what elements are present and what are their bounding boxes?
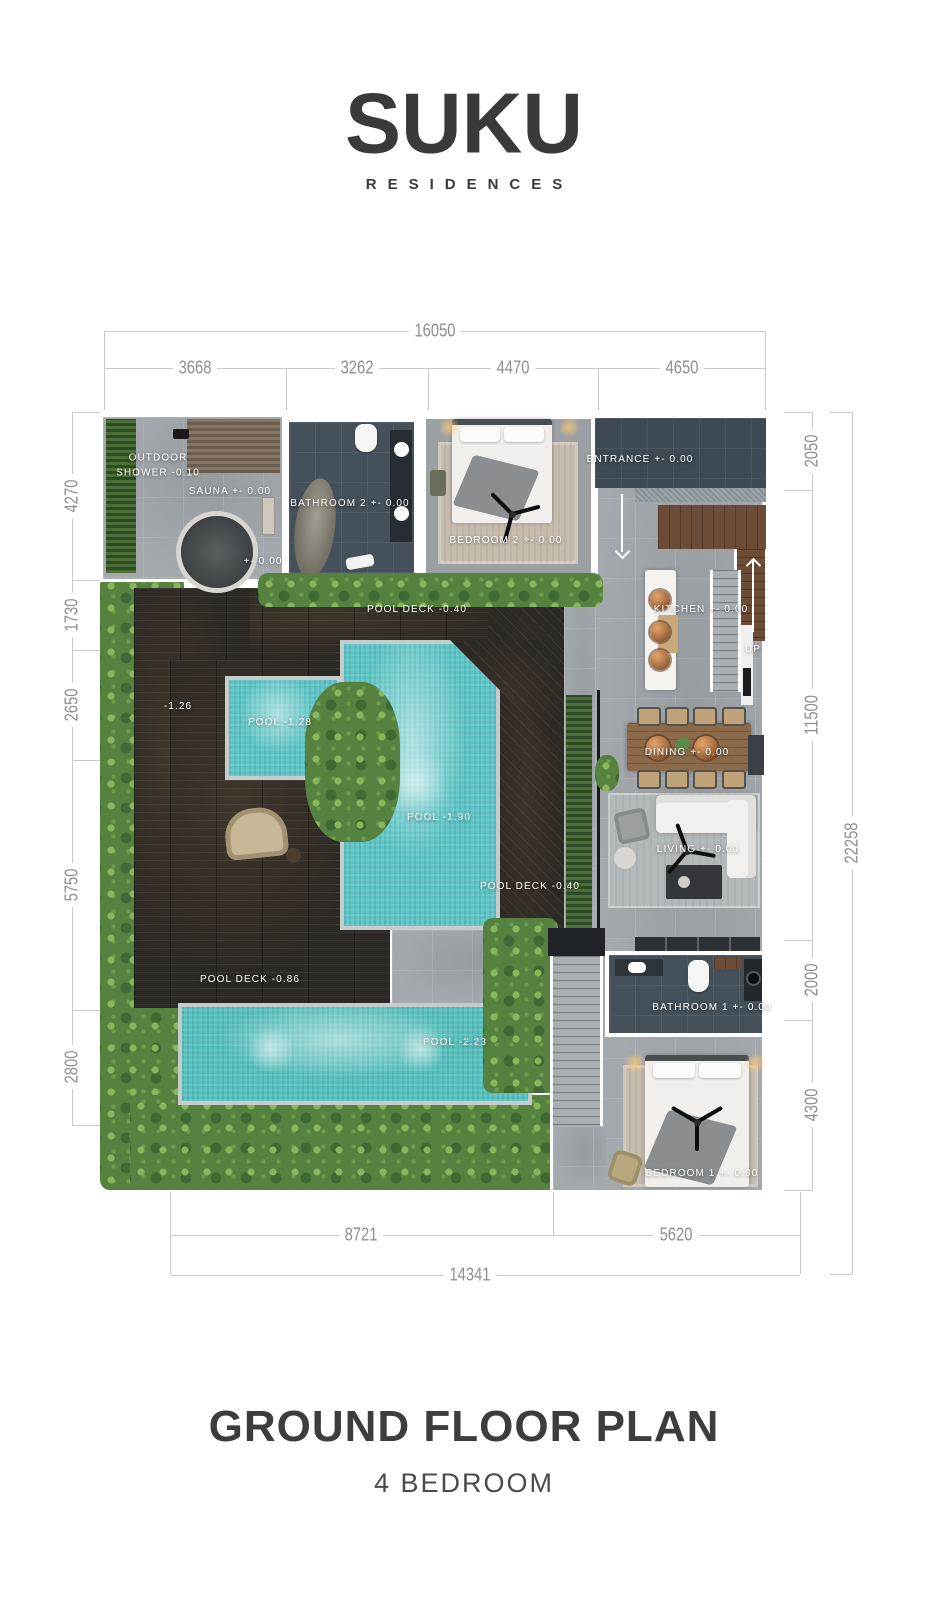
dim-tick — [104, 331, 105, 410]
hedge-corridor — [566, 695, 592, 940]
plan-title-block: GROUND FLOOR PLAN 4 BEDROOM — [0, 1402, 928, 1499]
decor-bowl — [678, 876, 690, 888]
sofa-chaise — [727, 800, 756, 878]
dim-right-seg-4: 4300 — [802, 1083, 823, 1127]
stairs-up-label: UP — [745, 643, 761, 658]
plan-title: GROUND FLOOR PLAN — [0, 1402, 928, 1452]
bedroom1-label: BEDROOM 1 +- 0.00 — [646, 1167, 759, 1182]
media-console — [635, 937, 760, 952]
dim-left-seg-3: 2650 — [62, 683, 83, 727]
sauna-bench — [262, 497, 275, 535]
wall-sconce — [624, 1052, 646, 1074]
dining-chair — [693, 707, 717, 726]
dim-tick — [72, 650, 100, 651]
dim-tick — [72, 412, 100, 413]
dim-top-seg-3: 4470 — [491, 358, 535, 379]
wall-sconce — [438, 416, 460, 438]
dim-tick — [784, 1020, 812, 1021]
dim-bottom-seg-line — [170, 1235, 800, 1236]
sink — [394, 442, 409, 457]
dim-right-total: 22258 — [842, 817, 863, 870]
dim-right-seg-3: 2000 — [802, 958, 823, 1002]
plunge-level-label: +- 0.00 — [243, 555, 282, 570]
dim-tick — [784, 1190, 812, 1191]
dim-tick — [72, 1010, 100, 1011]
bathroom1-label: BATHROOM 1 +- 0.00 — [652, 1001, 771, 1016]
floor-plan: OUTDOOR SHOWER -0.10 SAUNA +- 0.00 +- 0.… — [100, 410, 766, 1190]
dim-left-seg-1: 4270 — [62, 474, 83, 518]
stairs-lower-flight — [550, 956, 603, 1126]
living-label: LIVING +- 0.00 — [657, 843, 739, 858]
dim-tick — [72, 580, 100, 581]
pillow — [460, 427, 500, 442]
floor-plan-page: SUKU RESIDENCES 16050 3668 3262 4470 465… — [0, 0, 928, 1600]
wood-landing — [658, 505, 766, 549]
dim-tick — [598, 368, 599, 410]
dim-tick — [784, 412, 812, 413]
dim-tick — [830, 1274, 852, 1275]
kitchen-label: KITCHEN +- 0.00 — [654, 603, 749, 618]
entrance-step — [635, 488, 766, 502]
floor-plant — [595, 755, 619, 791]
pillow — [653, 1063, 695, 1078]
bedroom2-label: BEDROOM 2 +- 0.00 — [450, 534, 563, 549]
wood-shelf — [714, 958, 742, 969]
lap-pool — [178, 1003, 532, 1105]
ceiling-fan-icon — [697, 1122, 699, 1124]
dining-chair — [637, 707, 661, 726]
dining-chair — [637, 770, 661, 789]
shower-fixture-icon — [173, 429, 189, 439]
dining-chair — [665, 770, 689, 789]
deck-side-table — [286, 848, 301, 863]
stairs-main-flight — [710, 570, 741, 692]
plan-subtitle: 4 BEDROOM — [0, 1468, 928, 1499]
cold-plunge-tub — [176, 511, 258, 593]
dim-left-seg-5: 2800 — [62, 1045, 83, 1089]
dim-bottom-total: 14341 — [444, 1265, 497, 1286]
dim-tick — [72, 1125, 100, 1126]
dim-tick — [765, 331, 766, 410]
ceiling-fan-icon — [512, 514, 514, 516]
kids-pool-label: POOL -1.28 — [248, 716, 312, 731]
pool-deck-top-label: POOL DECK -0.40 — [367, 603, 467, 618]
dim-tick — [286, 368, 287, 410]
dining-chair — [722, 707, 746, 726]
bathroom2-label: BATHROOM 2 +- 0.00 — [290, 497, 409, 512]
sink — [628, 962, 646, 973]
dim-left-seg-2: 1730 — [62, 593, 83, 637]
dim-bottom-seg-1: 8721 — [339, 1225, 383, 1246]
dim-tick — [72, 760, 100, 761]
dim-top-seg-1: 3668 — [173, 358, 217, 379]
dim-left-seg-4: 5750 — [62, 863, 83, 907]
pillow — [699, 1063, 741, 1078]
stone-sink — [746, 971, 761, 986]
glass-wall — [597, 690, 600, 940]
outdoor-shower-label: OUTDOOR SHOWER -0.10 — [115, 452, 201, 481]
lap-pool-label: POOL -2.23 — [423, 1036, 487, 1051]
walkway — [550, 1126, 606, 1190]
appliance — [743, 668, 751, 696]
dining-chair — [665, 707, 689, 726]
dim-left-line — [72, 412, 73, 1125]
dim-top-seg-4: 4650 — [660, 358, 704, 379]
garden-lap-right — [483, 918, 558, 1093]
brand-logo: SUKU RESIDENCES — [0, 84, 928, 193]
pool-light — [250, 1018, 292, 1080]
console-cabinet — [748, 735, 764, 775]
dim-tick — [428, 368, 429, 410]
armchair — [613, 807, 651, 845]
dim-top-total: 16050 — [409, 321, 462, 342]
dim-tick — [784, 490, 812, 491]
brand-logo-text: SUKU — [0, 83, 928, 164]
dim-right-seg-2: 11500 — [802, 689, 823, 740]
wall-sconce — [558, 416, 580, 438]
deck-ledge-level-label: -1.26 — [164, 700, 192, 715]
dim-bottom-seg-2: 5620 — [654, 1225, 698, 1246]
garden-bottom — [130, 1095, 615, 1190]
wall-sconce — [744, 1052, 766, 1074]
dim-right-seg-1: 2050 — [802, 429, 823, 473]
bench — [430, 470, 446, 496]
dining-chair — [722, 770, 746, 789]
pendant-light-icon — [650, 650, 670, 670]
dim-tick — [830, 412, 852, 413]
dining-label: DINING +- 0.00 — [645, 746, 730, 761]
brand-tagline: RESIDENCES — [0, 176, 928, 193]
pillow — [504, 427, 544, 442]
dim-top-seg-2: 3262 — [335, 358, 379, 379]
entrance-label: ENTRANCE +- 0.00 — [587, 453, 694, 468]
coffee-table — [666, 865, 722, 899]
dim-tick — [553, 1192, 554, 1236]
dim-right-line — [812, 412, 813, 1190]
main-pool-label: POOL -1.90 — [407, 811, 471, 826]
hedge-planter — [106, 419, 136, 573]
dim-tick — [784, 940, 812, 941]
palm-cluster — [305, 682, 400, 842]
pendant-light-icon — [650, 622, 670, 642]
headboard — [645, 1055, 749, 1061]
sauna-label: SAUNA +- 0.00 — [189, 485, 271, 500]
toilet — [688, 960, 709, 992]
dim-tick — [170, 1192, 171, 1274]
toilet — [355, 424, 377, 452]
headboard — [452, 419, 552, 425]
dining-chair — [693, 770, 717, 789]
pool-deck-lower-label: POOL DECK -0.86 — [200, 973, 300, 988]
pool-deck-right-label: POOL DECK -0.40 — [480, 880, 580, 895]
dim-tick — [800, 1192, 801, 1274]
stair-landing — [548, 928, 605, 956]
side-table — [614, 847, 636, 869]
